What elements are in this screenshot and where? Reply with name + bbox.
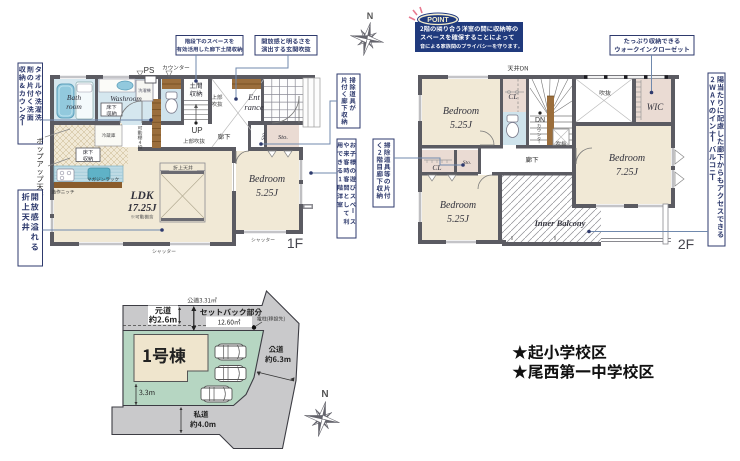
svg-text:Bedroom: Bedroom <box>249 174 285 185</box>
svg-text:Bedroom: Bedroom <box>609 153 645 164</box>
svg-text:UP: UP <box>191 126 202 135</box>
svg-text:Bedroom: Bedroom <box>443 106 479 117</box>
svg-text:Inner Balcony: Inner Balcony <box>534 218 586 228</box>
svg-text:DN: DN <box>535 117 545 124</box>
svg-text:POINT: POINT <box>427 17 449 24</box>
svg-text:rance: rance <box>244 102 264 112</box>
svg-text:5.25J: 5.25J <box>447 214 470 225</box>
svg-text:room: room <box>66 102 82 111</box>
svg-text:Sto.: Sto. <box>278 134 288 141</box>
svg-text:Sto.: Sto. <box>261 132 267 140</box>
svg-text:17.25J: 17.25J <box>128 203 158 214</box>
svg-text:Ent: Ent <box>247 92 260 102</box>
svg-text:WIC: WIC <box>647 102 664 112</box>
svg-text:5.25J: 5.25J <box>256 188 279 199</box>
svg-text:1F: 1F <box>287 235 303 251</box>
svg-text:Bedroom: Bedroom <box>440 200 476 211</box>
svg-text:N: N <box>321 389 328 400</box>
svg-text:PS: PS <box>144 66 155 75</box>
svg-text:LDK: LDK <box>130 190 155 202</box>
svg-text:7.25J: 7.25J <box>616 167 639 178</box>
svg-text:N: N <box>367 11 374 21</box>
svg-text:Bath: Bath <box>67 93 81 102</box>
svg-text:5.25J: 5.25J <box>450 120 473 131</box>
svg-text:2F: 2F <box>678 236 694 252</box>
